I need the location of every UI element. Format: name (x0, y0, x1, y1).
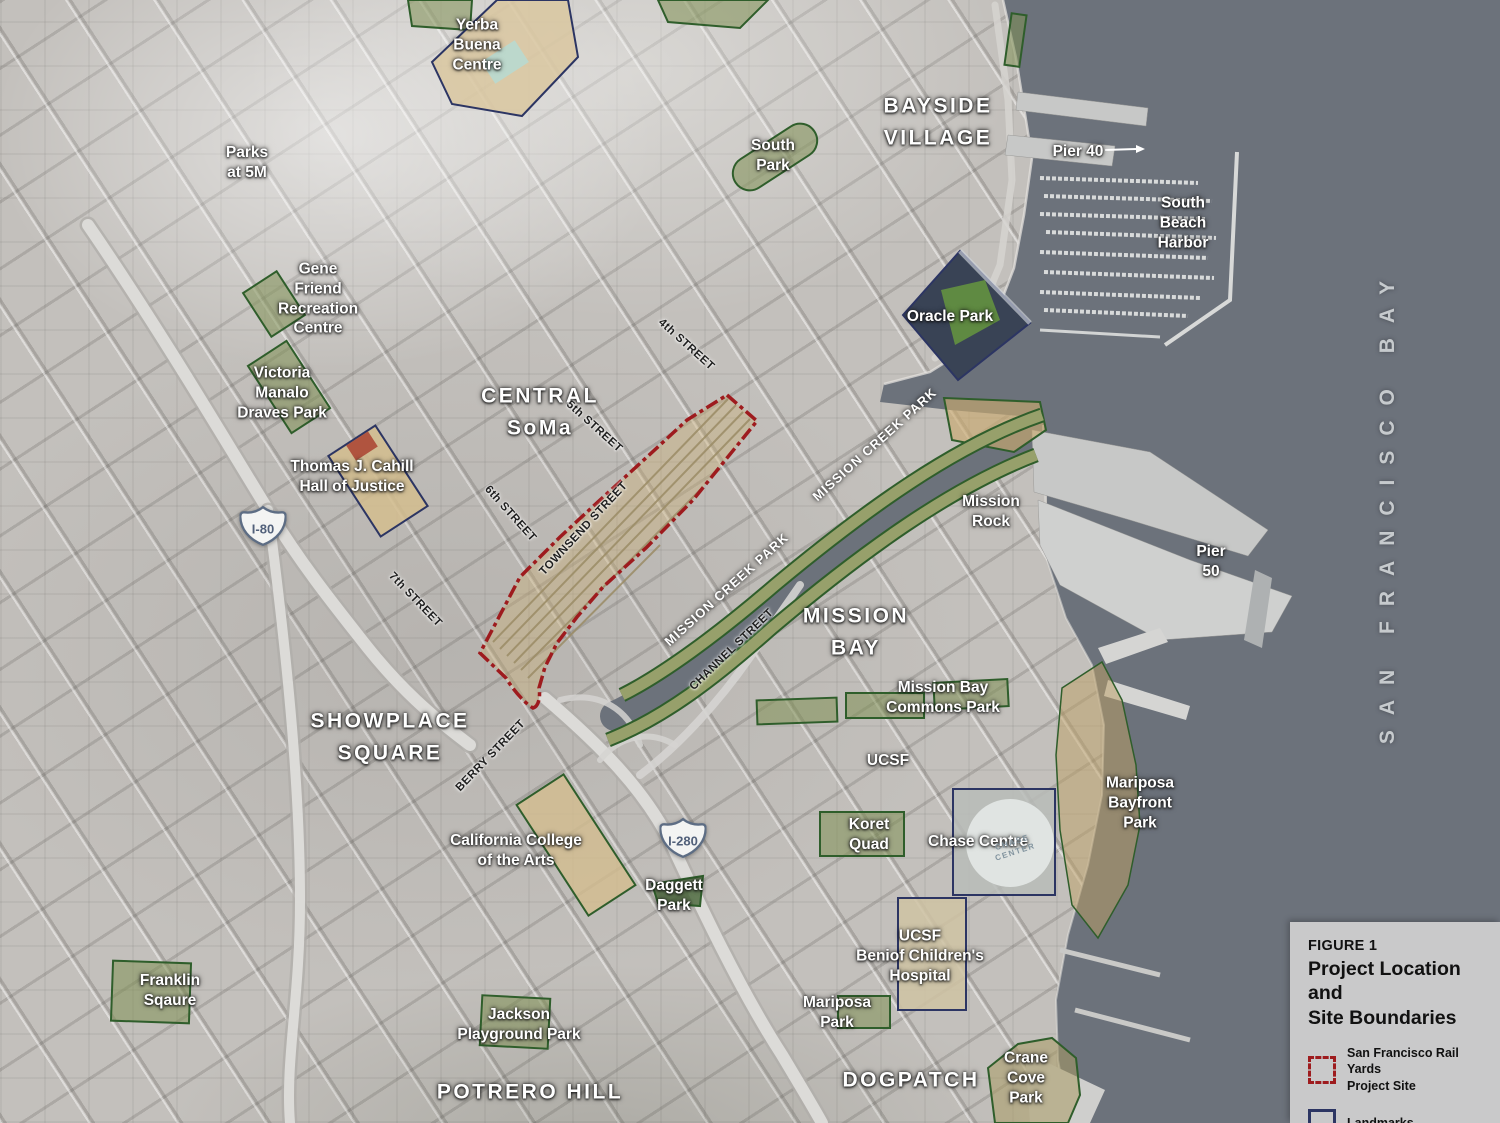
pier-40-label: Pier 40 (1053, 142, 1104, 162)
street-7th-label: 7th STREET (385, 569, 445, 630)
legend-swatch-landmarks (1308, 1109, 1336, 1123)
san-francisco-bay-label: SAN FRANCISCO BAY (1376, 266, 1400, 744)
legend-item-project-site: San Francisco Rail Yards Project Site (1308, 1045, 1484, 1094)
i-80-shield: I-80 (240, 505, 287, 548)
mission-creek-park-north-label: MISSION CREEK PARK (809, 385, 940, 505)
legend-items: San Francisco Rail Yards Project SiteLan… (1308, 1045, 1484, 1123)
ucsf-label: UCSF (867, 751, 909, 771)
showplace-square-label: SHOWPLACE SQUARE (311, 706, 470, 769)
i-280-shield-text: I-280 (660, 817, 707, 860)
mariposa-bayfront-park-label: Mariposa Bayfront Park (1106, 773, 1174, 832)
legend-panel: FIGURE 1 Project Location and Site Bound… (1290, 922, 1500, 1123)
california-college-of-the-arts-label: California College of the Arts (450, 831, 582, 871)
mission-bay-commons-park-label: Mission Bay Commons Park (886, 678, 1000, 718)
daggett-park-label: Daggett Park (645, 876, 703, 916)
legend-label-landmarks: Landmarks (1347, 1115, 1414, 1123)
south-beach-harbor-label: South Beach Harbor (1158, 193, 1209, 252)
franklin-sqaure-label: Franklin Sqaure (140, 971, 200, 1011)
south-park-label: South Park (751, 136, 795, 176)
crane-cove-park-label: Crane Cove Park (1004, 1048, 1048, 1107)
legend-label-project-site: San Francisco Rail Yards Project Site (1347, 1045, 1484, 1094)
koret-quad-label: Koret Quad (849, 815, 889, 855)
legend-figure-label: FIGURE 1 (1308, 938, 1484, 954)
label-layer: BAYSIDE VILLAGECENTRAL SoMaMISSION BAYSH… (0, 0, 1500, 1123)
street-6th-label: 6th STREET (481, 483, 539, 545)
oracle-park-label: Oracle Park (907, 307, 993, 327)
i-80-shield-text: I-80 (240, 505, 287, 548)
mission-bay-label: MISSION BAY (803, 601, 909, 664)
potrero-hill-label: POTRERO HILL (437, 1076, 623, 1108)
jackson-playground-park-label: Jackson Playground Park (457, 1005, 580, 1045)
yerba-buena-centre-label: Yerba Buena Centre (452, 15, 501, 74)
street-townsend-label: TOWNSEND STREET (537, 479, 632, 579)
mission-creek-park-south-label: MISSION CREEK PARK (661, 530, 792, 650)
street-4th-label: 4th STREET (655, 316, 717, 374)
parks-at-5m-label: Parks at 5M (226, 143, 268, 183)
legend-item-landmarks: Landmarks (1308, 1109, 1484, 1123)
victoria-manalo-draves-park-label: Victoria Manalo Draves Park (237, 363, 327, 422)
legend-swatch-project-site (1308, 1056, 1336, 1084)
thomas-j-cahill-hall-of-justice-label: Thomas J. Cahill Hall of Justice (290, 457, 413, 497)
pier-50-label: Pier 50 (1196, 542, 1225, 582)
map-figure: BAYSIDE VILLAGECENTRAL SoMaMISSION BAYSH… (0, 0, 1500, 1123)
legend-title: Project Location and Site Boundaries (1308, 957, 1484, 1030)
bayside-village-label: BAYSIDE VILLAGE (884, 91, 993, 154)
gene-friend-recreation-centre-label: Gene Friend Recreation Centre (278, 259, 358, 338)
dogpatch-label: DOGPATCH (842, 1064, 979, 1096)
mission-rock-label: Mission Rock (962, 492, 1020, 532)
ucsf-beniof-childrens-hospital-label: UCSF Beniof Children's Hospital (856, 926, 984, 985)
i-280-shield: I-280 (660, 817, 707, 860)
mariposa-park-label: Mariposa Park (803, 993, 871, 1033)
